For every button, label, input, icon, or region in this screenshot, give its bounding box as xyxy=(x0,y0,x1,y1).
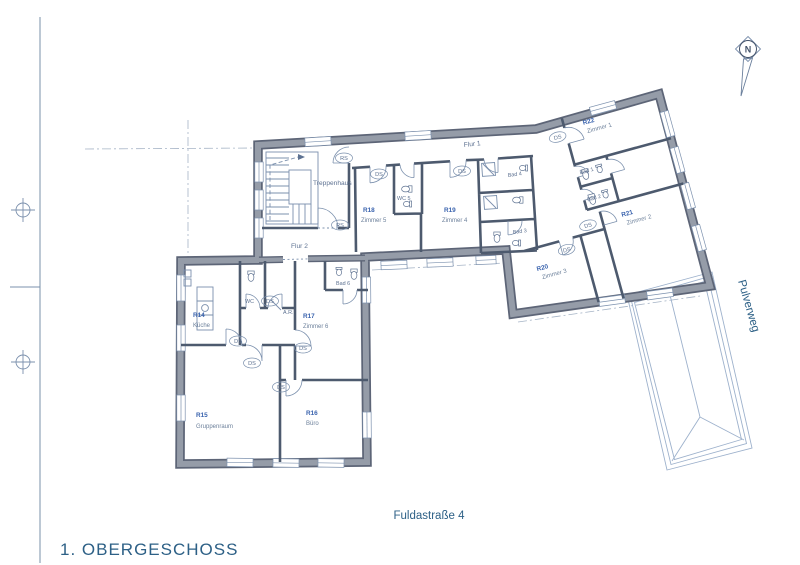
room-labels: Treppenhaus Flur 1 Flur 2 R18 Zimmer 5 R… xyxy=(193,140,527,430)
room-id-r20: R20 xyxy=(536,263,550,273)
label-bad3: Bad 3 xyxy=(512,228,527,236)
label-flur1: Flur 1 xyxy=(463,140,481,149)
room-id-r15: R15 xyxy=(196,412,208,419)
compass-needle xyxy=(741,58,753,96)
street-label-pulverweg: Pulverweg xyxy=(735,279,761,334)
street-label-fuldastrasse: Fuldastraße 4 xyxy=(394,510,466,522)
sink-icon xyxy=(601,189,609,198)
door-tag-rs: RS xyxy=(336,153,353,163)
room-id-r19: R19 xyxy=(444,207,456,214)
room-id-r21: R21 xyxy=(621,209,635,219)
compass-north-letter: N xyxy=(745,45,752,55)
sink-icon xyxy=(519,165,527,171)
svg-text:DS: DS xyxy=(248,361,256,367)
survey-mark xyxy=(11,198,35,222)
door-tag-ds: DS xyxy=(371,169,388,179)
north-compass: N xyxy=(736,37,761,97)
kitchen-counter xyxy=(184,270,213,330)
stair-direction-arrow xyxy=(298,154,305,160)
door-tag-ds: DS xyxy=(578,218,597,232)
sink-icon xyxy=(595,164,603,173)
survey-mark xyxy=(11,350,35,374)
room-id-r16: R16 xyxy=(306,410,318,417)
svg-text:DS: DS xyxy=(266,299,274,305)
label-wc: WC xyxy=(245,299,254,305)
wc-icon xyxy=(351,269,357,279)
wc-icon xyxy=(494,232,500,242)
svg-text:DS: DS xyxy=(299,346,307,352)
sink-icon xyxy=(336,267,342,275)
room-name-r19: Zimmer 4 xyxy=(442,218,468,224)
wc-icon xyxy=(513,197,523,203)
roof-ridge-hips xyxy=(669,291,744,461)
svg-text:DS: DS xyxy=(458,169,466,175)
room-id-r18: R18 xyxy=(363,207,375,214)
door-tag-ds: DS xyxy=(244,358,261,368)
page-title: 1. OBERGESCHOSS xyxy=(60,540,238,559)
stair-direction-line xyxy=(270,157,298,220)
svg-text:RS: RS xyxy=(340,156,348,162)
room-name-r15: Gruppenraum xyxy=(196,424,233,430)
staircase xyxy=(266,152,318,224)
kitchen-sink-icon xyxy=(202,305,209,312)
floor-plan-page: R22 Zimmer 1 R21 Zimmer 2 R20 Zimmer 3 B… xyxy=(0,0,800,565)
label-bad4: Bad 4 xyxy=(507,171,522,179)
floor-plan-drawing: R22 Zimmer 1 R21 Zimmer 2 R20 Zimmer 3 B… xyxy=(0,0,800,565)
door-tag-ds: DS xyxy=(548,130,567,144)
room-name-r16: Büro xyxy=(306,421,319,427)
room-name-r17: Zimmer 6 xyxy=(303,324,329,330)
wc-icon xyxy=(402,186,412,192)
label-treppenhaus: Treppenhaus xyxy=(313,180,352,187)
door-tag-ds: DS xyxy=(454,166,471,176)
roof-outline xyxy=(627,272,752,470)
label-wc5: WC 5 xyxy=(397,196,410,202)
room-id-r17: R17 xyxy=(303,313,315,320)
svg-text:DS: DS xyxy=(234,339,242,345)
room-id-r14: R14 xyxy=(193,312,205,319)
room-name-r14: Küche xyxy=(193,323,211,329)
door-tag-rs: RS xyxy=(332,220,349,230)
room-name-r18: Zimmer 5 xyxy=(361,218,387,224)
label-abstellraum: A.R. xyxy=(283,310,293,316)
door-tag-ds: DS xyxy=(230,336,247,346)
door-tag-ds: DS xyxy=(295,343,312,353)
svg-text:DS: DS xyxy=(277,385,285,391)
svg-text:DS: DS xyxy=(375,172,383,178)
label-bad6: Bad 6 xyxy=(336,281,350,287)
svg-text:RS: RS xyxy=(336,223,344,229)
label-flur2: Flur 2 xyxy=(291,243,308,250)
sheet-margin xyxy=(10,17,40,563)
wc-icon xyxy=(248,271,254,281)
sink-icon xyxy=(512,240,520,246)
